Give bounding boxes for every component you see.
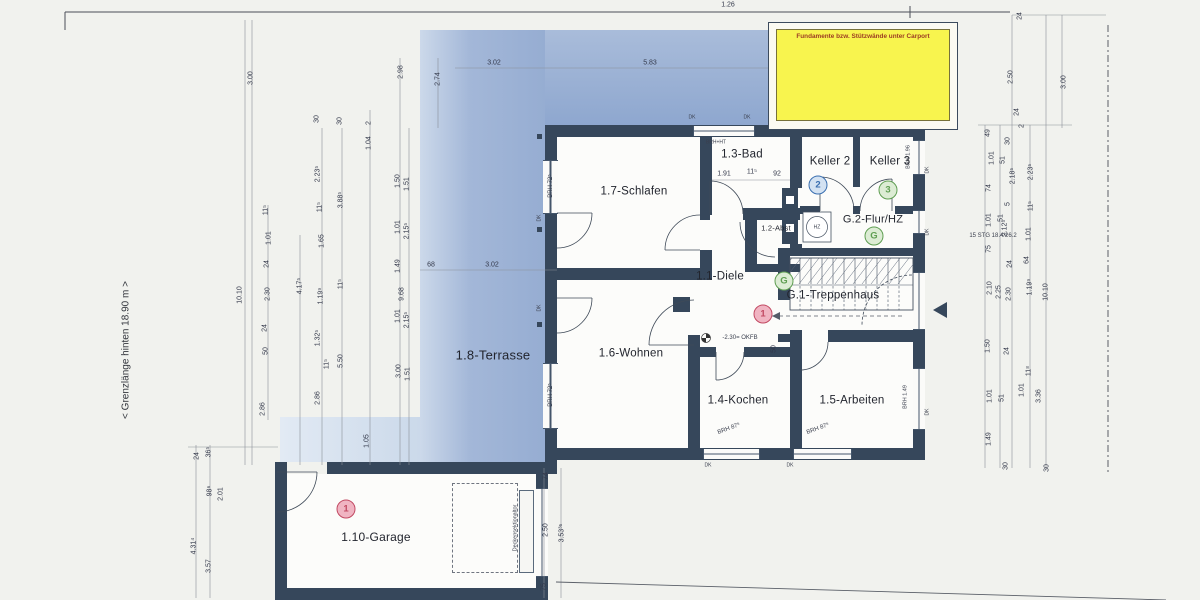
room-label-keller2: Keller 2 (810, 156, 851, 168)
room-label-wohnen: 1.6-Wohnen (599, 348, 663, 360)
circle-marker-G: G (775, 272, 794, 291)
floor-plan: 1.263.002.982.743.025.83303021.042.23⁵11… (0, 0, 1200, 600)
dimension-label: 11⁵ (317, 202, 324, 212)
dimension-label: 1.26 (721, 2, 735, 9)
dimension-label: 1.05 (364, 434, 371, 448)
dimension-label: 3.36 (1036, 389, 1043, 403)
dimension-label: 1.01 (266, 231, 273, 245)
annotation-label: DK (705, 464, 712, 469)
dimension-label: 11⁵ (338, 279, 345, 289)
annotation-label: HZ (814, 226, 821, 231)
dimension-label: 11⁸ (1026, 366, 1033, 376)
dimension-label: 74 (543, 472, 550, 480)
dimension-label: 2 (366, 121, 373, 125)
annotation-label: DK (787, 464, 794, 469)
room-label-bad: 1.3-Bad (721, 149, 763, 161)
annotation-label: DK (926, 229, 931, 236)
dimension-label: 2.30 (265, 287, 272, 301)
dimension-label: 1.01 (395, 309, 402, 323)
dimension-label: 30 (337, 117, 344, 125)
dimension-label: 1.49 (395, 259, 402, 273)
dimension-label: 2.98 (398, 65, 405, 79)
dimension-label: 30 (314, 115, 321, 123)
dimension-label: 24 (1017, 12, 1024, 20)
dimension-label: 2.86 (315, 391, 322, 405)
dimension-label: 30 (1003, 462, 1010, 470)
dimension-label: 4.31⁴ (191, 538, 198, 555)
dimension-label: 3.02 (485, 262, 499, 269)
circle-marker-3: 3 (879, 181, 898, 200)
dimension-label: 2 (1019, 124, 1026, 128)
annotation-label: DK (689, 116, 696, 121)
dimension-label: 11⁵ (1028, 201, 1035, 211)
dimension-label: 1.19⁹ (318, 288, 325, 305)
annotation-label: DK (926, 167, 931, 174)
circle-marker-1: 1 (754, 305, 773, 324)
dimension-label: 5 (1005, 202, 1012, 206)
room-label-terrasse: 1.8-Terrasse (456, 349, 531, 362)
dimension-label: 2.50 (1008, 70, 1015, 84)
dimension-label: 50 (263, 347, 270, 355)
dimension-label: 1.49 (986, 432, 993, 446)
circle-marker-2: 2 (809, 176, 828, 195)
dimension-label: 11⁵ (747, 169, 757, 176)
dimension-label: 2.50 (543, 523, 550, 537)
dimension-label: 24 (262, 324, 269, 332)
dimension-label: 1.01 (1019, 383, 1026, 397)
dimension-label: 75 (541, 583, 548, 591)
dimension-label: 11⁵ (263, 205, 270, 215)
dimension-label: 3.53³⁵ (559, 524, 566, 543)
dimension-label: 5.83 (643, 60, 657, 67)
room-label-abst: 1.2-Abst (761, 224, 791, 232)
dimension-label: 51 (1000, 156, 1007, 164)
dimension-label: 2.15⁵ (404, 223, 411, 240)
dimension-label: 3.00 (248, 71, 255, 85)
room-label-keller3: Keller 3 (870, 156, 911, 168)
dimension-label: 2.30 (1006, 287, 1013, 301)
dimension-label: 92 (773, 171, 781, 178)
dimension-label: 3.00 (396, 364, 403, 378)
annotation-label: DK (926, 409, 931, 416)
dimension-label: 1.01 (395, 220, 402, 234)
annotation-label: BRH 87⁵ (806, 422, 830, 436)
dimension-label: 1.32⁵ (315, 330, 322, 347)
dimension-label: 2.10 (987, 281, 994, 295)
dimension-label: 24 (194, 452, 201, 460)
dimension-label: 4.17⁵ (297, 278, 304, 295)
dimension-label: 98⁶ (207, 486, 214, 497)
dimension-label: 68 (427, 262, 435, 269)
dimension-label: 24 (1004, 347, 1011, 355)
dimension-label: 1.51 (404, 177, 411, 191)
dimension-label: 3.57 (206, 559, 213, 573)
dimension-label: 36⁵ (206, 447, 213, 458)
boundary-length-text: < Grenzlänge hinten 18.90 m > (121, 281, 132, 419)
annotation-label: BRH 72⁵ (548, 174, 554, 198)
dimension-label: 51 (999, 394, 1006, 402)
dimension-label: 3.00 (1061, 75, 1068, 89)
dimension-label: 9.68 (399, 287, 406, 301)
dimension-label: 1.50 (395, 174, 402, 188)
annotation-label: DK (744, 116, 751, 121)
dimension-label: 64 (1024, 256, 1031, 264)
annotation-label: DK (538, 215, 543, 222)
room-label-schlafen: 1.7-Schlafen (601, 186, 668, 198)
dimension-label: 1.51 (405, 367, 412, 381)
dimension-label: 1.01 (989, 151, 996, 165)
room-label-garage: 1.10-Garage (341, 531, 411, 543)
dimension-label: 50 (771, 345, 778, 353)
dimension-label: 30 (1005, 137, 1012, 145)
dimension-label: 2.74 (435, 72, 442, 86)
dimension-label: 24 (264, 260, 271, 268)
annotation-label: Deckensektionaltor (513, 505, 519, 552)
dimension-label: 2.25 (996, 285, 1003, 299)
labels-layer: 1.263.002.982.743.025.83303021.042.23⁵11… (0, 0, 1200, 600)
dimension-label: 5.50 (338, 354, 345, 368)
annotation-label: 15 STG 18.4/26.2 (969, 233, 1016, 239)
dimension-label: 2.23⁵ (315, 166, 322, 183)
dimension-label: 11⁵ (324, 359, 331, 369)
dimension-label: 75 (986, 245, 993, 253)
dimension-label: 24 (1014, 108, 1021, 116)
carport-note-box: Fundamente bzw. Stützwände unter Carport (768, 22, 958, 130)
dimension-label: 1.50 (985, 339, 992, 353)
room-label-arbeiten: 1.5-Arbeiten (819, 395, 884, 407)
dimension-label: 2.01 (218, 487, 225, 501)
circle-marker-G: G (865, 227, 884, 246)
dimension-label: 24 (1007, 260, 1014, 268)
dimension-label: 2.23⁵ (1028, 164, 1035, 181)
room-label-kochen: 1.4-Kochen (708, 395, 769, 407)
annotation-label: BRH 1.49 (903, 385, 909, 409)
annotation-label: BRH 72⁵ (548, 383, 554, 407)
dimension-label: 1.19⁹ (1027, 279, 1034, 296)
dimension-label: 49 (985, 129, 992, 137)
carport-note-highlight: Fundamente bzw. Stützwände unter Carport (776, 29, 950, 121)
room-label-diele: 1.1-Diele (696, 271, 744, 283)
carport-note-text: Fundamente bzw. Stützwände unter Carport (781, 33, 945, 40)
dimension-label: 10.10 (1043, 283, 1050, 301)
dimension-label: 1.01 (986, 213, 993, 227)
dimension-label: 1.04 (366, 136, 373, 150)
dimension-label: 10.10 (237, 286, 244, 304)
dimension-label: 3.02 (487, 60, 501, 67)
dimension-label: 1.01 (1026, 227, 1033, 241)
room-label-treppenhaus: G.1-Treppenhaus (787, 290, 880, 302)
annotation-label: BRH+HT (706, 141, 726, 146)
annotation-label: -2.30= OKFB (722, 335, 757, 341)
dimension-label: 2.86 (260, 402, 267, 416)
dimension-label: 2.18⁵ (1010, 168, 1017, 185)
room-label-flur-hz: G.2-Flur/HZ (843, 215, 903, 226)
circle-marker-1: 1 (337, 500, 356, 519)
annotation-label: DK (538, 305, 543, 312)
dimension-label: 74 (986, 184, 993, 192)
dimension-label: 2.15⁵ (404, 312, 411, 329)
dimension-label: 30 (1044, 464, 1051, 472)
dimension-label: 1.01 (987, 389, 994, 403)
annotation-label: BRH 87⁵ (717, 422, 741, 436)
dimension-label: 1.65 (319, 234, 326, 248)
dimension-label: 3.88⁵ (338, 192, 345, 209)
dimension-label: 1.91 (717, 171, 731, 178)
